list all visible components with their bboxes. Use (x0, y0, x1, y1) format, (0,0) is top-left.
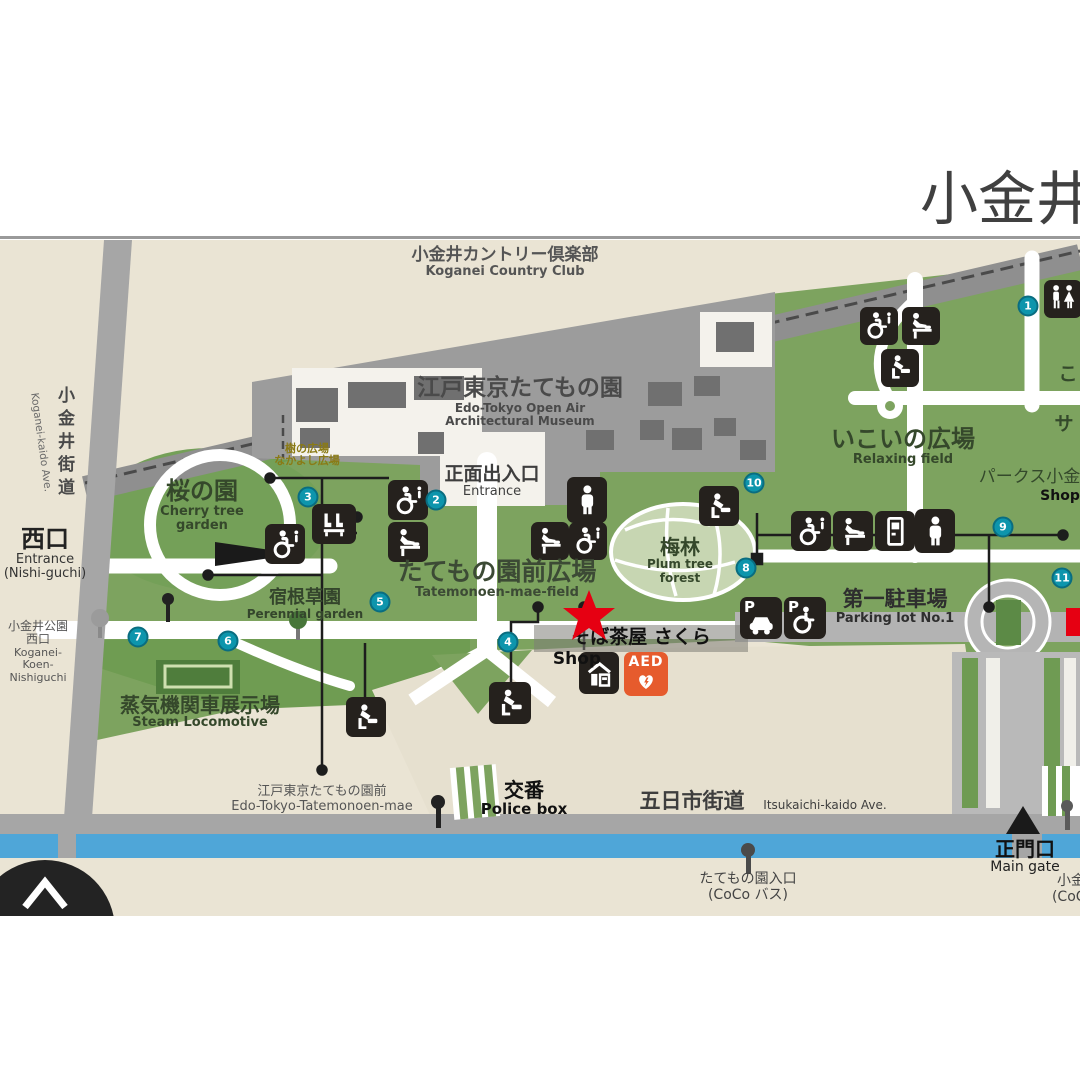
wheelchair-toilet-icon (791, 511, 831, 551)
red-marker-rect (1066, 608, 1080, 636)
label-parking-lot-1: 第一駐車場 Parking lot No.1 (836, 588, 954, 626)
koganei-park-map-page: 小金井公園 (0, 0, 1080, 1080)
label-parks-shop-en: Shop (1040, 489, 1080, 505)
baby-changing-icon (833, 511, 873, 551)
crosswalk-main-gate (1042, 766, 1080, 816)
drinking-fountain-icon (489, 682, 531, 724)
label-plum-forest: 梅林 Plum tree forest (647, 536, 713, 585)
baby-changing-icon (388, 522, 428, 562)
label-museum: 江戸東京たてもの園 Edo-Tokyo Open Air Architectur… (417, 376, 623, 429)
label-nishiguchi-bus-stop: 小金井公園 西口 Koganei- Koen- Nishiguchi (8, 620, 68, 684)
label-country-club: 小金井カントリー倶楽部 Koganei Country Club (412, 246, 599, 280)
numbered-marker: 9 (993, 517, 1014, 538)
numbered-marker: 6 (218, 631, 239, 652)
label-coco-bus-stop: たてもの園入口 (CoCo バス) (699, 872, 796, 903)
label-edo-bus-stop: 江戸東京たてもの園前 Edo-Tokyo-Tatemonoen-mae (231, 785, 413, 814)
label-kids-partial: こ (1058, 364, 1077, 385)
vending-machine-icon (875, 511, 915, 551)
parking-icon: P (740, 597, 782, 639)
numbered-marker: 1 (1018, 296, 1039, 317)
aed-heart-icon (634, 670, 658, 690)
label-ikoi-field: いこいの広場 Relaxing field (831, 426, 975, 467)
numbered-marker: 11 (1052, 568, 1073, 589)
label-main-entrance: 正面出入口 Entrance (444, 464, 539, 500)
numbered-marker: 7 (128, 627, 149, 648)
wheelchair-toilet-icon (265, 524, 305, 564)
numbered-marker: 3 (298, 487, 319, 508)
label-nakayoshi: 樹の広場 なかよし広場 (274, 443, 339, 468)
service-person-icon (567, 477, 607, 523)
accessible-parking-icon: P (784, 597, 826, 639)
label-main-gate: 正門口 Main gate (990, 838, 1059, 876)
numbered-marker: 2 (426, 490, 447, 511)
wheelchair-toilet-icon (569, 522, 607, 560)
numbered-marker: 10 (744, 473, 765, 494)
water-channel (0, 834, 1080, 858)
label-police-box: 交番 Police box (481, 779, 568, 818)
label-right-bus-stop: 小金井公園 (CoCo バス) (1052, 874, 1080, 905)
label-itsukaichi-kaido: 五日市街道 (640, 790, 745, 814)
numbered-marker: 4 (498, 632, 519, 653)
toilet-icon (1044, 280, 1080, 318)
label-cherry-garden: 桜の園 Cherry tree garden (160, 478, 244, 534)
label-koganei-kaido: 小金井街道 (52, 386, 77, 501)
bridge-west (58, 832, 76, 860)
baby-changing-icon (902, 307, 940, 345)
steam-locomotive-display (156, 660, 240, 694)
numbered-marker: 5 (370, 592, 391, 613)
wheelchair-toilet-icon (388, 480, 428, 520)
drinking-fountain-icon (346, 697, 386, 737)
rest-bench-icon (312, 504, 356, 544)
label-soba-shop-en: Shop (553, 650, 601, 669)
label-cycle-partial: サ (1054, 414, 1073, 435)
label-perennial-garden: 宿根草園 Perennial garden (247, 588, 363, 622)
label-steam-locomotive: 蒸気機関車展示場 Steam Locomotive (120, 694, 280, 731)
label-itsukaichi-kaido-en: Itsukaichi-kaido Ave. (763, 799, 886, 812)
current-location-star (560, 588, 618, 644)
drinking-fountain-icon (699, 486, 739, 526)
aed-icon: AED (624, 652, 668, 696)
numbered-marker: 8 (736, 558, 757, 579)
drinking-fountain-icon (881, 349, 919, 387)
wheelchair-toilet-icon (860, 307, 898, 345)
label-west-gate: 西口 Entrance (Nishi-guchi) (4, 526, 86, 582)
label-parks-shop: パークス小金井 (979, 468, 1080, 487)
baby-changing-icon (531, 522, 569, 560)
service-person-icon (915, 509, 955, 553)
